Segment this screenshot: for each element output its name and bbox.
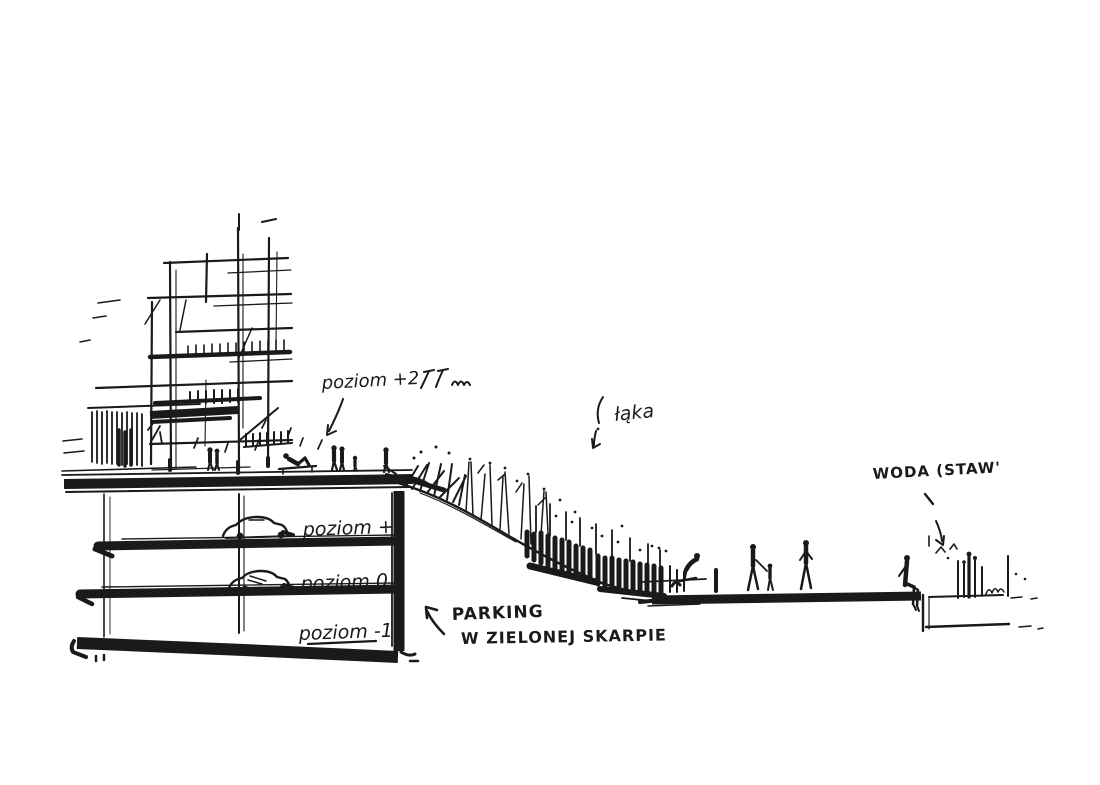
- walking-figure: [800, 540, 812, 589]
- annotation-woda-staw: WODA (STAW': [872, 458, 1001, 545]
- annex-hatch: [92, 411, 142, 466]
- car-level-plus1: [223, 517, 293, 539]
- laka-dot: [597, 428, 600, 431]
- label-woda-staw: WODA (STAW': [872, 458, 1001, 483]
- child-figure: [768, 564, 773, 590]
- seat-line: [680, 578, 696, 581]
- toe-reeds: [670, 566, 684, 592]
- person-figure: [207, 447, 213, 470]
- promenade-step-line: [641, 579, 706, 582]
- label-parking-line2: W ZIELONEJ SKARPIE: [461, 625, 667, 648]
- label-laka: łąka: [613, 400, 655, 426]
- label-poziom-0: poziom 0: [299, 570, 388, 595]
- label-poziom-plus2: poziom +2: [320, 368, 420, 394]
- person-legs: [801, 563, 811, 589]
- sketch-canvas: poziom +1 poziom 0 poziom -1: [0, 0, 1100, 785]
- label-parking-line1: PARKING: [451, 602, 543, 625]
- annex-top-rail: [88, 404, 200, 408]
- walking-figure: [748, 544, 767, 590]
- reed-head: [973, 556, 977, 560]
- car-wheel: [242, 586, 249, 593]
- annotation-laka: łąka: [592, 397, 655, 448]
- person-arm: [756, 560, 767, 571]
- arrow-woda: [936, 521, 944, 545]
- deck-slab: [64, 479, 413, 484]
- person-figure: [215, 449, 220, 470]
- people-on-deck: [207, 445, 389, 474]
- car-hood-scribble: [248, 576, 266, 584]
- woda-dash: [925, 494, 933, 504]
- tower-dark-deck: [150, 410, 238, 415]
- car-wheel: [237, 533, 244, 540]
- person-legs: [332, 461, 337, 470]
- label-poziom-plus1: poziom +1: [301, 515, 406, 541]
- annotation-poziom-plus2: poziom +2: [320, 368, 470, 435]
- tower-antenna: [239, 214, 276, 230]
- promenade-deck: [652, 596, 921, 600]
- car-rear-shade: [283, 532, 293, 535]
- pond: [923, 536, 1043, 631]
- arrow-laka: [592, 431, 600, 448]
- person-legs: [298, 458, 309, 465]
- laka-paren: [598, 397, 603, 423]
- person-legs: [684, 570, 686, 580]
- reed-head: [967, 552, 972, 557]
- water-line: [929, 595, 1003, 597]
- upper-deck: [62, 470, 432, 492]
- lower-promenade: [640, 570, 921, 606]
- pond-dots: [948, 558, 1025, 579]
- annex-dashes: [63, 439, 84, 453]
- person-torso: [686, 559, 697, 570]
- architectural-section-sketch: poziom +1 poziom 0 poziom -1: [0, 0, 1100, 785]
- pond-bottom-dashes: [1019, 626, 1043, 629]
- promenade-left-taper: [640, 600, 660, 602]
- person-legs: [768, 578, 773, 590]
- scribble-stroke: [421, 369, 470, 388]
- crest-dots: [414, 447, 449, 458]
- pond-bottom: [926, 624, 1009, 627]
- water-line-dashes: [1011, 597, 1037, 599]
- child-figure: [353, 456, 357, 471]
- annex-hatch-dark: [119, 430, 131, 466]
- slab-level-minus1: [77, 643, 398, 657]
- person-legs: [748, 566, 758, 590]
- person-legs: [340, 462, 344, 470]
- slope-vegetation: [384, 447, 684, 596]
- parking-wall-foot: [401, 652, 415, 655]
- annotation-parking: PARKING W ZIELONEJ SKARPIE: [426, 602, 667, 648]
- slab-level-plus1: [98, 541, 397, 546]
- bench-seat: [279, 466, 316, 469]
- reed-base-scribble: [986, 589, 1004, 594]
- edge-sitter-figure: [899, 555, 919, 611]
- arrow-poziom-plus2: [327, 399, 343, 435]
- shrub-dots: [556, 516, 666, 551]
- label-poziom-minus1: poziom -1: [297, 620, 393, 645]
- reed-head: [962, 560, 966, 564]
- person-figure: [339, 446, 344, 470]
- person-figure: [331, 445, 337, 470]
- arrow-parking: [426, 607, 444, 634]
